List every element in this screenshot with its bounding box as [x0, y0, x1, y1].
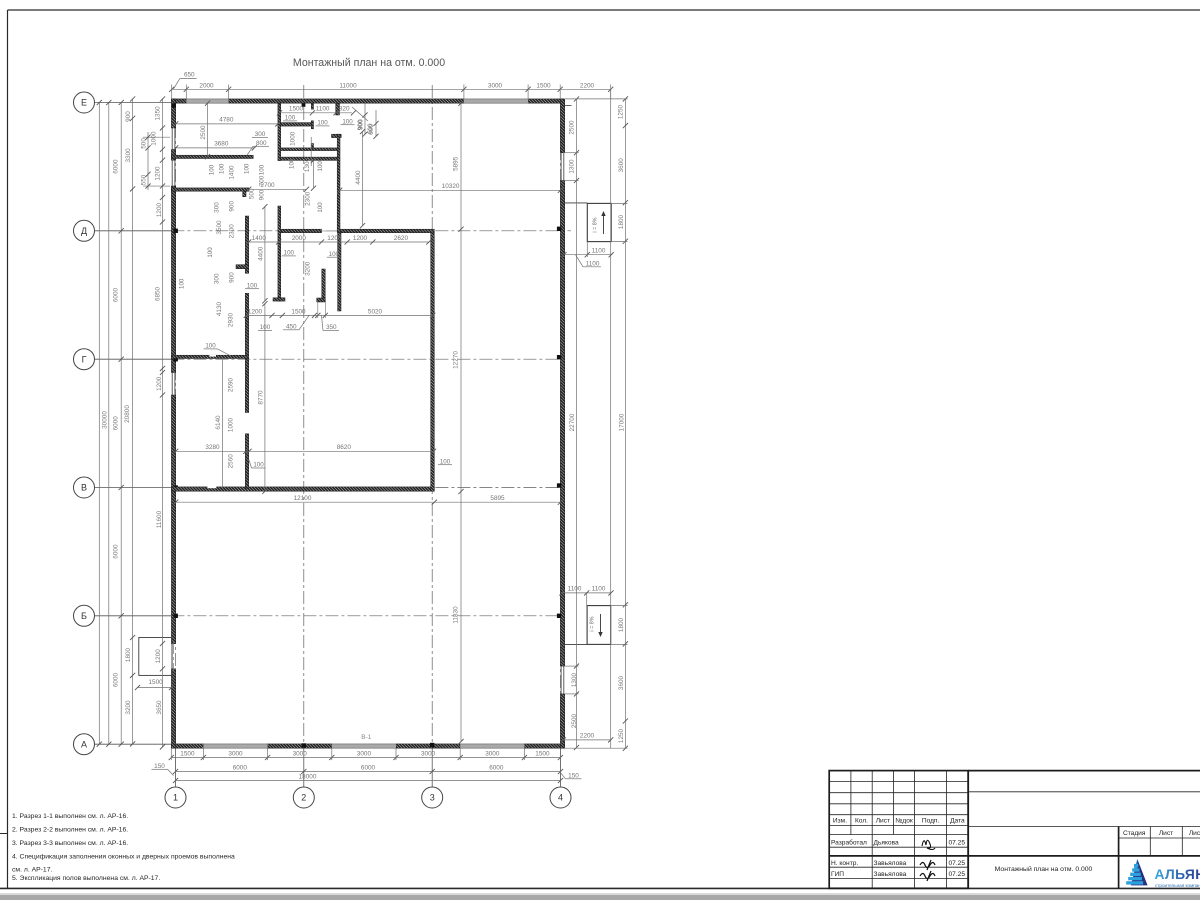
svg-text:8620: 8620: [337, 444, 352, 451]
svg-text:3680: 3680: [214, 140, 229, 147]
svg-text:1100: 1100: [586, 260, 600, 267]
svg-text:100: 100: [205, 343, 216, 350]
svg-text:i = 8%: i = 8%: [593, 217, 599, 232]
svg-text:450: 450: [286, 323, 297, 330]
svg-text:100: 100: [208, 164, 215, 175]
svg-text:18000: 18000: [299, 773, 317, 780]
svg-text:6000: 6000: [112, 672, 119, 687]
svg-text:350: 350: [326, 324, 337, 331]
svg-text:100: 100: [243, 163, 250, 174]
svg-text:№док: №док: [895, 818, 913, 825]
svg-text:1200: 1200: [156, 202, 163, 217]
svg-text:900: 900: [258, 189, 265, 200]
svg-text:2000: 2000: [292, 235, 307, 242]
svg-text:3500: 3500: [216, 220, 223, 235]
svg-text:1100: 1100: [592, 585, 606, 592]
svg-text:3000: 3000: [421, 750, 436, 757]
svg-text:2500: 2500: [200, 125, 207, 140]
svg-text:4780: 4780: [219, 117, 234, 124]
svg-text:1200: 1200: [353, 235, 368, 242]
svg-text:1400: 1400: [252, 235, 267, 242]
svg-text:1. Разрез 1-1 выполнен см. л.: 1. Разрез 1-1 выполнен см. л. АР-16.: [12, 813, 128, 820]
svg-text:1100: 1100: [592, 247, 606, 254]
svg-text:А: А: [81, 739, 87, 749]
svg-text:5895: 5895: [490, 495, 505, 502]
svg-text:300: 300: [213, 273, 220, 284]
svg-text:100: 100: [178, 278, 185, 289]
svg-text:В: В: [81, 483, 87, 493]
svg-text:Н. контр.: Н. контр.: [831, 860, 858, 867]
svg-text:1200: 1200: [248, 308, 263, 315]
svg-text:1100: 1100: [568, 585, 582, 592]
svg-text:Лист: Лист: [876, 818, 890, 825]
svg-text:2560: 2560: [228, 454, 235, 469]
svg-text:4400: 4400: [355, 170, 362, 185]
svg-text:900: 900: [125, 111, 132, 122]
svg-text:6000: 6000: [112, 416, 119, 431]
svg-text:2930: 2930: [228, 312, 235, 327]
svg-text:100: 100: [207, 247, 214, 258]
svg-text:2200: 2200: [580, 82, 595, 89]
svg-text:2000: 2000: [199, 82, 214, 89]
svg-text:1300: 1300: [304, 157, 311, 172]
svg-text:3000: 3000: [488, 82, 503, 89]
svg-text:100: 100: [253, 462, 264, 469]
svg-text:1800: 1800: [125, 647, 132, 662]
svg-text:2500: 2500: [568, 120, 575, 135]
svg-text:550: 550: [141, 174, 148, 185]
svg-text:100: 100: [247, 282, 258, 289]
svg-text:20800: 20800: [124, 405, 131, 423]
svg-text:100: 100: [258, 164, 265, 175]
svg-text:2: 2: [301, 793, 306, 803]
svg-text:3200: 3200: [305, 261, 312, 276]
svg-text:700: 700: [258, 175, 265, 186]
svg-text:3600: 3600: [618, 158, 625, 173]
svg-text:2. Разрез 2-2 выполнен см. л.: 2. Разрез 2-2 выполнен см. л. АР-16.: [12, 827, 128, 834]
svg-text:3300: 3300: [125, 148, 132, 163]
svg-text:3650: 3650: [156, 700, 163, 715]
svg-text:100: 100: [260, 324, 271, 331]
svg-text:900: 900: [228, 272, 235, 283]
svg-text:Б: Б: [81, 611, 87, 621]
svg-text:17000: 17000: [618, 413, 625, 431]
svg-text:6000: 6000: [233, 764, 248, 771]
svg-text:В-1: В-1: [361, 734, 372, 741]
svg-text:3600: 3600: [618, 675, 625, 690]
svg-text:Разработал: Разработал: [831, 838, 867, 846]
svg-text:1400: 1400: [228, 165, 235, 180]
svg-text:07.25: 07.25: [949, 860, 966, 867]
svg-text:1500: 1500: [536, 82, 551, 89]
svg-text:1250: 1250: [618, 728, 625, 743]
svg-text:1200: 1200: [327, 235, 342, 242]
svg-text:6000: 6000: [489, 764, 504, 771]
svg-text:2620: 2620: [394, 235, 409, 242]
svg-text:ГИП: ГИП: [831, 871, 844, 878]
svg-text:300: 300: [213, 202, 220, 213]
svg-text:6140: 6140: [215, 415, 222, 430]
svg-text:12100: 12100: [294, 495, 312, 502]
svg-text:Г: Г: [82, 354, 87, 364]
svg-text:4400: 4400: [257, 246, 264, 261]
svg-text:07.25: 07.25: [949, 871, 966, 878]
svg-text:5020: 5020: [368, 308, 383, 315]
svg-text:1100: 1100: [316, 106, 330, 113]
svg-text:500: 500: [141, 138, 148, 149]
svg-text:07.25: 07.25: [949, 839, 966, 846]
svg-text:Кол.: Кол.: [855, 818, 868, 825]
svg-text:5895: 5895: [453, 156, 460, 171]
svg-text:4. Спецификация заполнения око: 4. Спецификация заполнения оконных и две…: [12, 854, 235, 861]
svg-text:100: 100: [218, 163, 225, 174]
svg-text:Дата: Дата: [950, 818, 965, 825]
svg-text:3000: 3000: [357, 750, 372, 757]
svg-text:6850: 6850: [155, 286, 162, 301]
svg-text:100: 100: [342, 118, 353, 125]
svg-text:11000: 11000: [339, 82, 357, 89]
svg-text:100: 100: [284, 250, 295, 257]
svg-text:11600: 11600: [156, 510, 163, 528]
svg-text:3: 3: [430, 793, 435, 803]
svg-text:10320: 10320: [442, 183, 460, 190]
svg-text:800: 800: [256, 140, 267, 147]
svg-text:100: 100: [288, 158, 295, 169]
svg-text:1000: 1000: [228, 417, 235, 432]
svg-text:900: 900: [228, 201, 235, 212]
svg-text:30000: 30000: [101, 411, 108, 429]
svg-text:Е: Е: [81, 98, 87, 108]
svg-text:900: 900: [357, 119, 364, 130]
svg-text:Стадия: Стадия: [1123, 830, 1146, 837]
svg-text:6000: 6000: [361, 764, 376, 771]
svg-text:4: 4: [558, 793, 563, 803]
svg-text:1200: 1200: [155, 166, 162, 181]
svg-text:Подп.: Подп.: [922, 818, 940, 825]
svg-text:1500: 1500: [535, 750, 550, 757]
svg-text:Дьякова: Дьякова: [874, 839, 900, 846]
svg-text:i = 8%: i = 8%: [590, 616, 596, 631]
svg-text:5. Экспликация полов выполнена: 5. Экспликация полов выполнена см. л. АР…: [12, 875, 160, 882]
svg-text:100: 100: [440, 458, 451, 465]
svg-text:Монтажный план на отм. 0.000: Монтажный план на отм. 0.000: [995, 865, 1093, 873]
svg-text:1800: 1800: [618, 214, 625, 229]
svg-text:Завьялова: Завьялова: [874, 871, 907, 878]
svg-text:1500: 1500: [291, 308, 306, 315]
svg-text:500: 500: [248, 188, 255, 199]
svg-text:1500: 1500: [180, 750, 195, 757]
svg-text:1350: 1350: [155, 106, 162, 121]
svg-text:600: 600: [367, 123, 374, 134]
svg-text:1250: 1250: [617, 104, 624, 119]
svg-text:12270: 12270: [453, 351, 460, 369]
svg-text:100: 100: [317, 161, 324, 172]
svg-text:3000: 3000: [228, 750, 243, 757]
svg-text:строительная компания: строительная компания: [1155, 883, 1200, 888]
svg-text:6000: 6000: [112, 544, 119, 559]
svg-text:1800: 1800: [618, 617, 625, 632]
svg-text:2500: 2500: [571, 713, 578, 728]
svg-text:1300: 1300: [568, 159, 575, 174]
svg-text:6000: 6000: [112, 287, 119, 302]
svg-text:1500: 1500: [289, 106, 304, 113]
svg-text:Лист: Лист: [1159, 830, 1173, 837]
svg-text:3. Разрез 3-3 выполнен см. л.: 3. Разрез 3-3 выполнен см. л. АР-16.: [12, 840, 128, 847]
svg-text:Завьялова: Завьялова: [874, 860, 907, 867]
svg-text:Д: Д: [81, 226, 87, 236]
svg-text:3000: 3000: [485, 750, 500, 757]
svg-text:820: 820: [339, 106, 350, 113]
svg-text:1500: 1500: [148, 679, 163, 686]
svg-text:АЛЬЯНС: АЛЬЯНС: [1155, 867, 1200, 882]
svg-text:1200: 1200: [155, 649, 162, 664]
svg-text:2300: 2300: [305, 191, 312, 206]
svg-text:см. л. АР-17.: см. л. АР-17.: [12, 867, 52, 874]
svg-text:4130: 4130: [216, 301, 223, 316]
svg-text:1000: 1000: [289, 131, 296, 146]
svg-text:11830: 11830: [453, 606, 460, 624]
svg-text:Лист: Лист: [1189, 830, 1200, 837]
svg-text:8770: 8770: [257, 390, 264, 405]
svg-text:22700: 22700: [569, 413, 576, 431]
svg-text:Монтажный план на отм. 0.000: Монтажный план на отм. 0.000: [293, 57, 445, 69]
svg-text:1200: 1200: [156, 376, 163, 391]
svg-text:1: 1: [173, 793, 178, 803]
svg-text:1000: 1000: [150, 131, 157, 146]
svg-text:2590: 2590: [228, 377, 235, 392]
svg-text:3280: 3280: [205, 444, 220, 451]
svg-text:6000: 6000: [112, 159, 119, 174]
svg-text:2300: 2300: [228, 224, 235, 239]
svg-text:100: 100: [317, 202, 324, 213]
svg-text:2200: 2200: [580, 732, 595, 739]
svg-text:Изм.: Изм.: [833, 818, 847, 825]
svg-text:100: 100: [329, 251, 340, 258]
svg-text:100: 100: [285, 115, 296, 122]
svg-text:100: 100: [317, 120, 328, 127]
svg-text:3000: 3000: [293, 750, 308, 757]
svg-text:1300: 1300: [571, 672, 578, 687]
svg-text:650: 650: [184, 72, 195, 79]
svg-text:300: 300: [255, 131, 266, 138]
svg-text:3200: 3200: [125, 700, 132, 715]
